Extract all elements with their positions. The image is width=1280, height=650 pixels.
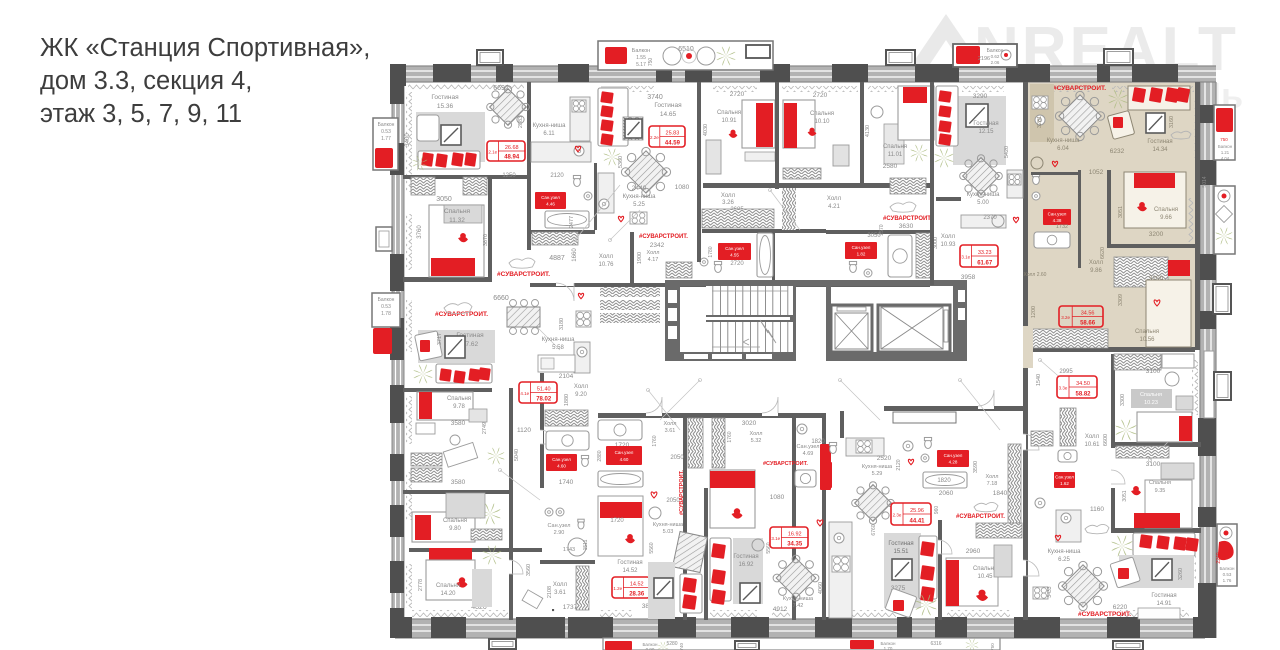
svg-text:1.78: 1.78 <box>381 311 391 317</box>
svg-text:25.83: 25.83 <box>666 130 680 136</box>
svg-text:61.67: 61.67 <box>977 260 993 266</box>
svg-text:3200: 3200 <box>1149 231 1164 238</box>
svg-text:9.20: 9.20 <box>575 392 587 398</box>
svg-text:3160: 3160 <box>1169 116 1175 128</box>
svg-text:14.91: 14.91 <box>1156 601 1172 607</box>
svg-text:1.62: 1.62 <box>1060 481 1069 486</box>
svg-text:4.69: 4.69 <box>803 451 814 457</box>
svg-text:14.52: 14.52 <box>622 568 638 574</box>
svg-text:11.32: 11.32 <box>449 217 465 224</box>
svg-text:2108: 2108 <box>547 586 553 598</box>
svg-text:3281: 3281 <box>1037 116 1043 128</box>
svg-text:14.20: 14.20 <box>440 591 456 597</box>
svg-text:1.82: 1.82 <box>857 252 866 257</box>
svg-text:#СУВАРСТРОИТ.: #СУВАРСТРОИТ. <box>497 271 550 278</box>
svg-text:3.26: 3.26 <box>722 200 734 206</box>
svg-text:51.40: 51.40 <box>537 386 551 392</box>
svg-text:Балкон: Балкон <box>632 48 650 54</box>
svg-text:1820: 1820 <box>937 478 951 484</box>
svg-text:1.2е: 1.2е <box>613 586 622 591</box>
svg-text:3958: 3958 <box>961 274 976 281</box>
svg-text:Кухня-ниша: Кухня-ниша <box>967 192 1001 198</box>
svg-text:6316: 6316 <box>930 641 941 647</box>
svg-text:Сан.узел: Сан.узел <box>1048 212 1067 217</box>
svg-text:Сан.узел: Сан.узел <box>615 450 634 455</box>
svg-text:Сан.узел: Сан.узел <box>1055 475 1074 480</box>
svg-text:Холл: Холл <box>827 196 842 202</box>
svg-text:6220: 6220 <box>1113 604 1128 611</box>
svg-text:#СУВАРСТРОИТ.: #СУВАРСТРОИТ. <box>1078 611 1131 618</box>
svg-text:3309: 3309 <box>1118 294 1124 306</box>
svg-text:4030: 4030 <box>703 124 709 136</box>
svg-text:3100: 3100 <box>1146 461 1161 468</box>
svg-text:5280: 5280 <box>666 641 677 647</box>
svg-text:6.25: 6.25 <box>1058 557 1070 563</box>
svg-text:3180: 3180 <box>559 318 565 330</box>
svg-text:11.01: 11.01 <box>888 152 903 158</box>
svg-text:9.66: 9.66 <box>1160 215 1172 221</box>
svg-text:Спальня: Спальня <box>1140 392 1162 398</box>
svg-text:9.35: 9.35 <box>1155 488 1166 494</box>
svg-text:Гостиная: Гостиная <box>888 541 913 547</box>
svg-text:4.17: 4.17 <box>648 257 659 263</box>
svg-text:Гостиная: Гостиная <box>973 121 998 127</box>
svg-text:3051: 3051 <box>1118 206 1124 218</box>
svg-text:3290: 3290 <box>973 93 988 100</box>
svg-text:15.51: 15.51 <box>893 549 909 555</box>
svg-text:Кухня-ниша: Кухня-ниша <box>623 194 657 200</box>
svg-text:Гостиная: Гостиная <box>1147 139 1172 145</box>
svg-text:2720: 2720 <box>730 91 745 98</box>
svg-text:1120: 1120 <box>517 427 531 434</box>
svg-text:0.53: 0.53 <box>381 304 391 310</box>
svg-text:ЖК «Станция Спортивная»,: ЖК «Станция Спортивная», <box>40 34 370 62</box>
svg-text:58.82: 58.82 <box>1075 391 1091 397</box>
svg-text:2120: 2120 <box>550 173 564 179</box>
svg-text:1760: 1760 <box>652 435 658 446</box>
svg-text:Балкон: Балкон <box>1218 144 1233 149</box>
svg-text:3590: 3590 <box>973 461 979 473</box>
svg-text:Спальня: Спальня <box>973 566 997 572</box>
svg-text:48.94: 48.94 <box>504 155 520 161</box>
svg-text:3.2е: 3.2е <box>1061 315 1070 320</box>
svg-text:5.00: 5.00 <box>977 200 989 206</box>
svg-text:4.46: 4.46 <box>546 202 555 207</box>
svg-text:2995: 2995 <box>1059 369 1073 375</box>
svg-text:750: 750 <box>1220 137 1228 142</box>
svg-text:5.03: 5.03 <box>663 529 674 535</box>
svg-text:2.1е: 2.1е <box>488 149 497 154</box>
svg-text:Спальня: Спальня <box>443 518 467 524</box>
svg-text:3.61: 3.61 <box>665 428 676 434</box>
svg-text:Холл: Холл <box>941 234 956 240</box>
svg-text:3433: 3433 <box>1047 586 1053 597</box>
svg-text:2104: 2104 <box>559 373 574 380</box>
svg-text:1743: 1743 <box>563 547 575 553</box>
svg-text:1720: 1720 <box>610 518 624 524</box>
svg-text:0.53: 0.53 <box>1223 572 1232 577</box>
svg-text:4912: 4912 <box>773 606 788 613</box>
svg-text:2720: 2720 <box>813 92 828 99</box>
svg-text:Холл: Холл <box>1085 434 1100 440</box>
svg-text:2.90: 2.90 <box>554 530 565 536</box>
svg-text:1780: 1780 <box>708 246 714 257</box>
svg-text:5420: 5420 <box>1004 146 1010 158</box>
svg-text:Кухня-ниша: Кухня-ниша <box>862 464 893 470</box>
svg-text:10.91: 10.91 <box>721 118 737 124</box>
svg-text:4.60: 4.60 <box>557 464 566 469</box>
svg-text:14.52: 14.52 <box>630 581 644 587</box>
svg-text:15.36: 15.36 <box>437 103 454 110</box>
svg-text:Сан.узел: Сан.узел <box>548 523 571 529</box>
svg-text:Спальня: Спальня <box>1135 329 1159 335</box>
svg-text:3740: 3740 <box>647 94 663 101</box>
svg-text:0.62: 0.62 <box>991 54 1000 59</box>
svg-text:1732: 1732 <box>1056 224 1068 230</box>
svg-text:2342: 2342 <box>650 242 665 249</box>
svg-text:3050: 3050 <box>436 196 452 203</box>
svg-text:Кухня-ниша: Кухня-ниша <box>1048 549 1082 555</box>
svg-text:2440: 2440 <box>632 185 647 192</box>
svg-text:1.21: 1.21 <box>1221 150 1230 155</box>
svg-text:6620: 6620 <box>1100 247 1106 259</box>
svg-text:78.02: 78.02 <box>536 396 552 402</box>
svg-text:2883: 2883 <box>518 116 524 128</box>
svg-text:3717: 3717 <box>437 333 443 345</box>
svg-text:этаж 3, 5, 7, 9, 11: этаж 3, 5, 7, 9, 11 <box>40 100 242 128</box>
svg-text:4.04: 4.04 <box>1221 156 1230 161</box>
svg-text:5.32: 5.32 <box>751 438 762 444</box>
svg-text:Сан.узел: Сан.узел <box>541 195 560 200</box>
svg-text:960: 960 <box>934 506 940 515</box>
svg-text:9.78: 9.78 <box>453 404 465 410</box>
svg-text:Спальня: Спальня <box>883 144 907 150</box>
svg-text:Гостиная: Гостиная <box>733 554 758 560</box>
svg-text:3.61: 3.61 <box>554 590 566 596</box>
svg-text:5.17: 5.17 <box>636 62 646 68</box>
svg-text:6.11: 6.11 <box>543 131 555 137</box>
svg-text:7.42: 7.42 <box>793 603 804 609</box>
svg-text:6660: 6660 <box>493 295 509 302</box>
svg-text:3400: 3400 <box>405 133 411 147</box>
svg-text:1740: 1740 <box>679 642 684 650</box>
svg-text:34.35: 34.35 <box>787 541 803 547</box>
svg-text:#СУВАРСТРОИТ.: #СУВАРСТРОИТ. <box>639 234 688 240</box>
svg-text:Спальня: Спальня <box>436 583 460 589</box>
svg-text:1737: 1737 <box>563 604 578 611</box>
svg-text:Балкон: Балкон <box>378 122 395 128</box>
svg-text:6600: 6600 <box>1103 434 1109 446</box>
svg-text:3560: 3560 <box>526 564 532 576</box>
svg-text:4.60: 4.60 <box>620 457 629 462</box>
svg-text:1540: 1540 <box>1036 374 1042 386</box>
svg-text:Кухня-ниша: Кухня-ниша <box>1047 138 1081 144</box>
svg-text:4060: 4060 <box>818 582 824 594</box>
svg-text:Холл: Холл <box>599 254 614 260</box>
svg-text:2749: 2749 <box>482 422 488 434</box>
svg-text:2050: 2050 <box>670 455 684 461</box>
svg-text:14.65: 14.65 <box>660 111 677 118</box>
svg-text:Холл: Холл <box>750 431 763 437</box>
svg-text:16.92: 16.92 <box>788 531 802 537</box>
svg-text:3760: 3760 <box>417 225 423 239</box>
svg-text:3580: 3580 <box>451 420 466 427</box>
svg-text:5014: 5014 <box>1202 176 1208 187</box>
svg-text:2880: 2880 <box>597 450 603 461</box>
svg-text:3580: 3580 <box>451 479 466 486</box>
svg-text:Спальня: Спальня <box>444 208 471 215</box>
svg-text:26.68: 26.68 <box>505 145 519 151</box>
svg-text:#СУВАРСТРОИТ.: #СУВАРСТРОИТ. <box>679 470 685 515</box>
svg-text:#СУВАРСТРОИТ.: #СУВАРСТРОИТ. <box>435 311 488 318</box>
svg-text:Холл: Холл <box>1089 260 1104 266</box>
svg-text:14.34: 14.34 <box>1152 147 1168 153</box>
svg-text:10.56: 10.56 <box>1139 337 1155 343</box>
svg-text:1880: 1880 <box>564 394 570 406</box>
svg-text:Гостиная: Гостиная <box>654 102 682 109</box>
svg-text:2060: 2060 <box>939 490 954 497</box>
svg-text:4.38: 4.38 <box>1053 218 1062 223</box>
svg-text:2778: 2778 <box>418 579 424 591</box>
svg-text:3.3е: 3.3е <box>1059 386 1068 391</box>
svg-text:Холл 2.60: Холл 2.60 <box>1024 272 1047 278</box>
svg-text:Холл: Холл <box>986 474 999 480</box>
svg-text:12.15: 12.15 <box>978 129 994 135</box>
svg-text:2960: 2960 <box>966 548 981 555</box>
svg-text:Кухня-ниша: Кухня-ниша <box>533 123 567 129</box>
svg-text:0.53: 0.53 <box>381 129 391 135</box>
svg-text:9.86: 9.86 <box>1090 268 1102 274</box>
svg-text:3.1е: 3.1е <box>961 255 970 260</box>
svg-text:3.1е: 3.1е <box>771 536 780 541</box>
svg-text:2580: 2580 <box>883 163 898 170</box>
svg-text:1.77: 1.77 <box>381 136 391 142</box>
svg-text:7.18: 7.18 <box>987 481 998 487</box>
svg-text:Спальня: Спальня <box>1154 207 1178 213</box>
svg-text:#СУВАРСТРОИТ.: #СУВАРСТРОИТ. <box>883 216 932 222</box>
svg-text:5.29: 5.29 <box>872 471 883 477</box>
svg-text:3100: 3100 <box>1146 368 1161 375</box>
svg-text:Кухня-ниша: Кухня-ниша <box>542 337 576 343</box>
svg-text:1660: 1660 <box>572 248 578 262</box>
svg-text:10.23: 10.23 <box>1144 400 1158 406</box>
svg-text:3630: 3630 <box>899 223 914 230</box>
svg-text:6232: 6232 <box>1110 148 1125 155</box>
svg-text:750: 750 <box>990 643 995 650</box>
svg-text:10.10: 10.10 <box>814 119 830 125</box>
svg-text:33.23: 33.23 <box>978 250 992 256</box>
svg-text:5560: 5560 <box>649 542 655 553</box>
svg-text:1250: 1250 <box>502 173 516 179</box>
svg-text:Холл: Холл <box>574 384 589 390</box>
svg-text:1080: 1080 <box>770 494 785 501</box>
svg-text:6692: 6692 <box>493 85 509 92</box>
svg-text:1160: 1160 <box>1090 506 1104 513</box>
svg-text:1760: 1760 <box>727 431 733 442</box>
svg-text:1900: 1900 <box>637 252 643 264</box>
svg-text:5.58: 5.58 <box>552 345 564 351</box>
svg-text:1.55: 1.55 <box>636 55 646 61</box>
svg-text:2.2е: 2.2е <box>650 135 659 140</box>
svg-text:28.36: 28.36 <box>629 591 645 597</box>
svg-text:25.96: 25.96 <box>910 508 924 514</box>
svg-text:44.41: 44.41 <box>909 518 925 524</box>
svg-text:4130: 4130 <box>865 125 871 137</box>
svg-text:2.3е: 2.3е <box>893 513 902 518</box>
svg-text:58.66: 58.66 <box>1080 320 1096 326</box>
svg-text:2570: 2570 <box>879 224 885 235</box>
svg-text:4.55: 4.55 <box>730 253 739 258</box>
svg-text:3300: 3300 <box>1120 394 1126 406</box>
svg-text:10.45: 10.45 <box>977 574 993 580</box>
svg-text:Холл: Холл <box>664 421 677 427</box>
svg-text:дом 3.3, секция 4,: дом 3.3, секция 4, <box>40 67 252 95</box>
svg-text:Спальня: Спальня <box>447 396 471 402</box>
svg-text:1511: 1511 <box>583 539 589 550</box>
svg-text:2477: 2477 <box>569 216 575 228</box>
svg-text:Холл: Холл <box>553 582 568 588</box>
svg-text:34.56: 34.56 <box>1081 310 1095 316</box>
svg-text:4.21: 4.21 <box>828 204 840 210</box>
svg-text:3020: 3020 <box>742 420 757 427</box>
svg-text:2720: 2720 <box>730 261 744 267</box>
svg-text:5040: 5040 <box>514 449 520 461</box>
svg-text:Сан.узел: Сан.узел <box>725 246 744 251</box>
svg-text:Сан.узел: Сан.узел <box>944 453 963 458</box>
svg-text:Сан.узел: Сан.узел <box>852 245 871 250</box>
svg-text:4887: 4887 <box>549 255 565 262</box>
svg-text:10.93: 10.93 <box>940 242 956 248</box>
svg-text:Спальня: Спальня <box>1149 480 1171 486</box>
svg-text:1080: 1080 <box>675 184 690 191</box>
svg-text:3870: 3870 <box>483 234 489 246</box>
svg-text:Гостиная: Гостиная <box>1151 593 1176 599</box>
svg-text:Спальня: Спальня <box>717 110 741 116</box>
svg-text:5360: 5360 <box>618 156 624 168</box>
svg-text:#СУВАРСТРОИТ.: #СУВАРСТРОИТ. <box>956 514 1005 520</box>
svg-text:Холл: Холл <box>647 250 660 256</box>
svg-text:9.80: 9.80 <box>449 526 461 532</box>
svg-text:1052: 1052 <box>1089 169 1104 176</box>
svg-text:4.1е: 4.1е <box>520 391 529 396</box>
svg-text:10.76: 10.76 <box>598 262 614 268</box>
svg-text:2520: 2520 <box>877 455 892 462</box>
svg-text:Балкон: Балкон <box>378 297 395 303</box>
svg-text:1740: 1740 <box>559 479 574 486</box>
svg-text:44.59: 44.59 <box>665 140 681 146</box>
svg-text:6760: 6760 <box>871 524 877 535</box>
svg-text:750: 750 <box>648 58 654 67</box>
svg-text:Кухня-ниша: Кухня-ниша <box>783 596 814 602</box>
svg-text:10.61: 10.61 <box>1084 442 1100 448</box>
svg-text:Сан.узел: Сан.узел <box>552 457 571 462</box>
svg-text:2240: 2240 <box>1216 552 1222 563</box>
svg-text:3051: 3051 <box>1122 490 1128 501</box>
svg-text:1.70: 1.70 <box>884 646 893 650</box>
svg-text:2.06: 2.06 <box>991 60 1000 65</box>
svg-text:6.04: 6.04 <box>1057 146 1069 152</box>
svg-text:1840: 1840 <box>993 490 1008 497</box>
svg-text:5.25: 5.25 <box>633 202 645 208</box>
svg-text:34.50: 34.50 <box>1076 381 1090 387</box>
svg-text:Балкон: Балкон <box>1219 566 1235 571</box>
svg-text:2196: 2196 <box>978 56 990 62</box>
svg-text:Кухня-ниша: Кухня-ниша <box>653 522 684 528</box>
svg-text:Гостиная: Гостиная <box>431 94 459 101</box>
svg-text:#СУВАРСТРОИТ.: #СУВАРСТРОИТ. <box>763 461 808 467</box>
svg-text:1.76: 1.76 <box>1223 578 1232 583</box>
svg-text:3260: 3260 <box>1178 568 1184 580</box>
svg-text:Гостиная: Гостиная <box>617 560 642 566</box>
svg-text:4.28: 4.28 <box>949 460 958 465</box>
svg-text:Холл: Холл <box>721 193 736 199</box>
svg-text:16.92: 16.92 <box>738 562 754 568</box>
svg-text:2120: 2120 <box>896 459 902 470</box>
svg-text:1200: 1200 <box>1031 306 1037 318</box>
svg-text:Спальня: Спальня <box>810 111 834 117</box>
